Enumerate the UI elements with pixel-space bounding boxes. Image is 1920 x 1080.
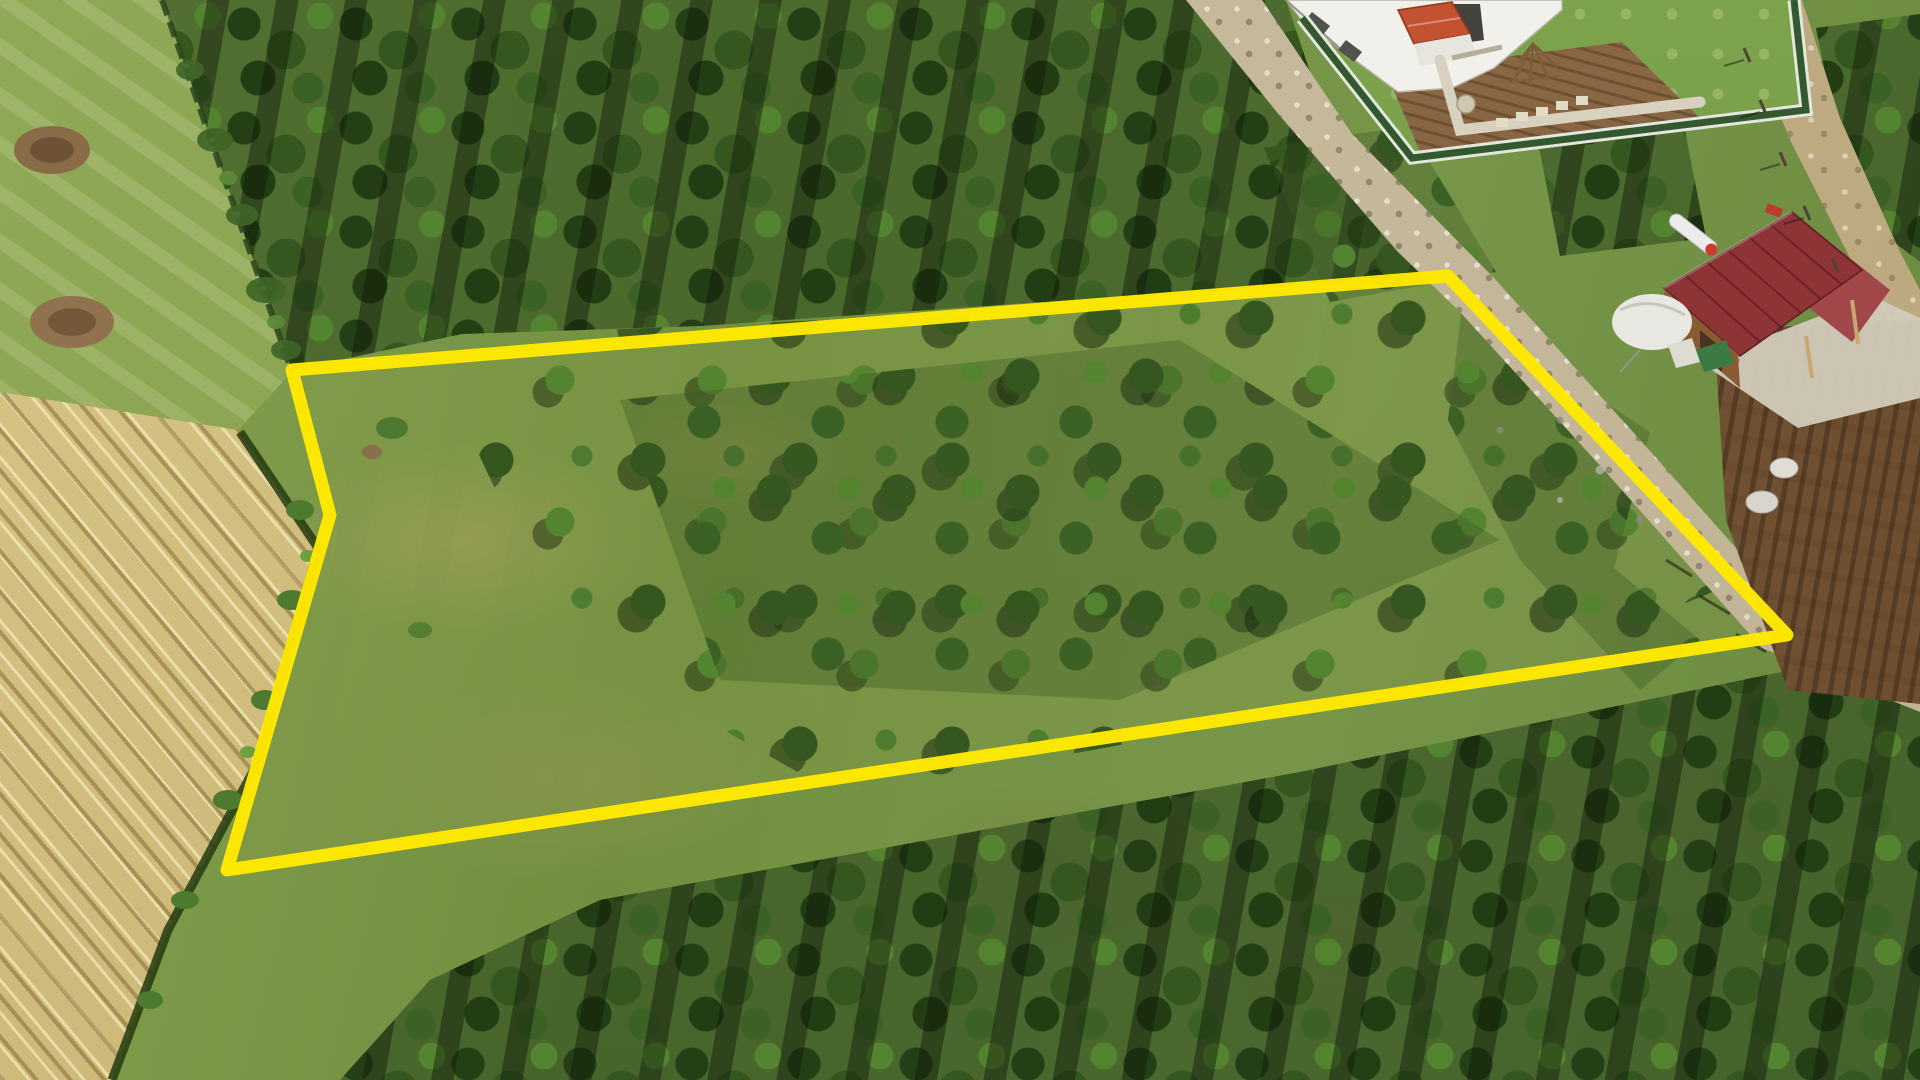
- aerial-parcel-photo: 2583 m2 2583 m2 2583 m2 emlakjet.com: [0, 0, 1920, 1080]
- shed: [1652, 212, 1920, 428]
- red-object: [1765, 204, 1783, 218]
- garden-well-stone: [1457, 95, 1475, 113]
- feed-sacks: [1746, 458, 1798, 513]
- rocks: [1497, 356, 1645, 524]
- surfboard-object: [1667, 211, 1721, 258]
- teepee-sticks: [1510, 44, 1558, 84]
